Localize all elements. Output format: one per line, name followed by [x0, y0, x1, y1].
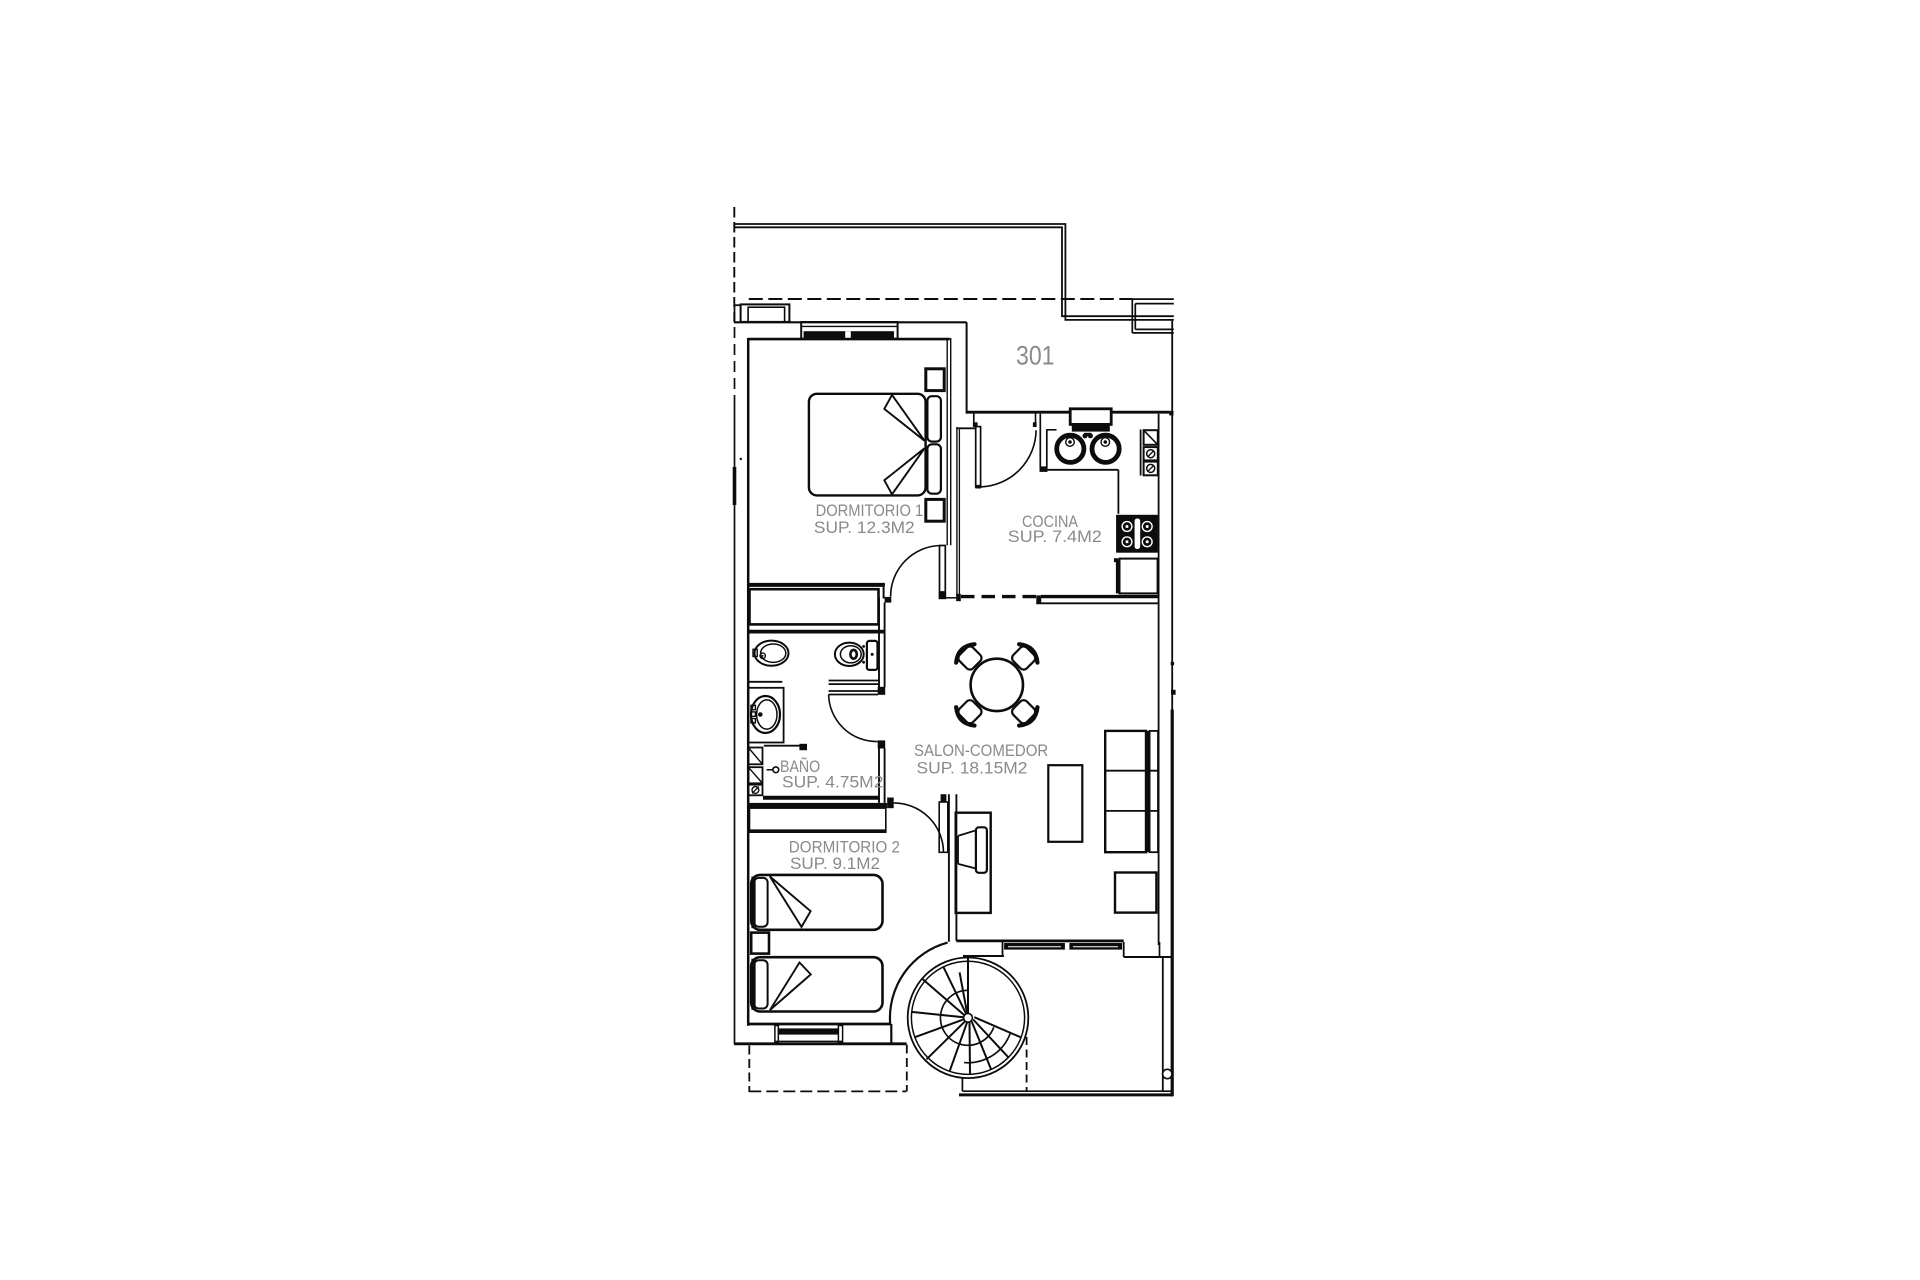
- svg-text:SUP. 7.4M2: SUP. 7.4M2: [1008, 527, 1102, 546]
- svg-text:SUP. 18.15M2: SUP. 18.15M2: [917, 759, 1028, 778]
- svg-text:SUP. 9.1M2: SUP. 9.1M2: [790, 854, 880, 873]
- svg-text:SUP. 4.75M2: SUP. 4.75M2: [782, 773, 883, 792]
- svg-text:SALON-COMEDOR: SALON-COMEDOR: [914, 741, 1048, 760]
- svg-text:301: 301: [1016, 341, 1055, 371]
- svg-text:SUP. 12.3M2: SUP. 12.3M2: [814, 518, 915, 537]
